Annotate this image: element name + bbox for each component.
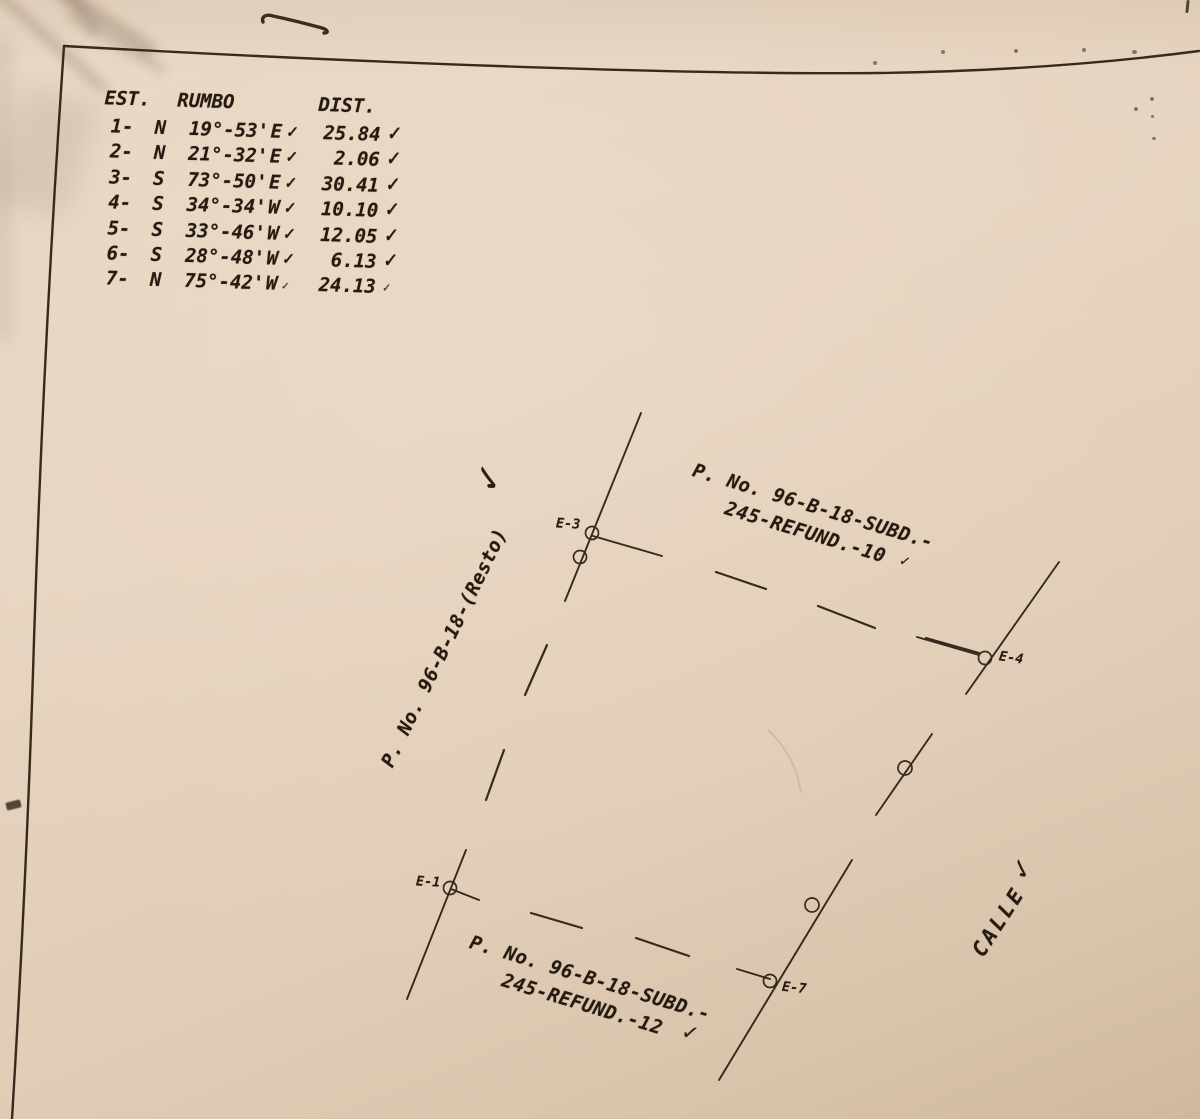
checkmark-icon: ✓ bbox=[386, 121, 401, 147]
dust-speck bbox=[1152, 137, 1156, 140]
survey-plat-photo: EST. RUMBO DIST. 1-N 19°-53'E✓25.84✓ 2-N… bbox=[0, 0, 1200, 1119]
checkmark-icon: ✓ bbox=[281, 244, 319, 272]
est-cell: 3- bbox=[109, 165, 154, 191]
survey-tick bbox=[593, 536, 662, 556]
checkmark-icon: ✓ bbox=[384, 171, 399, 197]
paper-crease bbox=[768, 730, 801, 792]
checkmark-icon: ✓ bbox=[280, 272, 318, 300]
dash bbox=[486, 750, 504, 800]
rumbo-cell: S 33°-46' bbox=[151, 217, 268, 245]
rumbo-cell: N 75°-42' bbox=[150, 268, 267, 296]
traverse-line-e7 bbox=[719, 860, 852, 1080]
dust-speck bbox=[1014, 49, 1018, 53]
col-header-rumbo: RUMBO bbox=[177, 89, 235, 119]
dash bbox=[716, 572, 766, 589]
checkmark-icon: ✓ bbox=[382, 248, 397, 274]
dist-cell: 6.13 bbox=[318, 248, 377, 274]
point-label-e3: E-3 bbox=[556, 515, 581, 532]
col-header-est: EST. bbox=[104, 86, 151, 115]
traverse-table: EST. RUMBO DIST. 1-N 19°-53'E✓25.84✓ 2-N… bbox=[91, 86, 577, 310]
est-cell: 2- bbox=[110, 140, 155, 166]
rumbo-cell: N 19°-53' bbox=[154, 116, 271, 144]
survey-tick bbox=[917, 637, 979, 655]
est-cell: 7- bbox=[106, 267, 151, 293]
dash bbox=[926, 638, 979, 653]
pen-mark bbox=[263, 15, 328, 33]
dust-speck bbox=[1150, 97, 1154, 101]
checkmark-icon: ✓ bbox=[282, 218, 320, 246]
dist-cell: 24.13 bbox=[317, 273, 376, 299]
checkmark-icon: ✓ bbox=[382, 222, 397, 248]
point-label-e4: E-4 bbox=[998, 648, 1024, 667]
parcel-boundary-dashed-bottom bbox=[531, 913, 689, 956]
dust-speck bbox=[1134, 107, 1138, 111]
traverse-line-e4 bbox=[917, 562, 1059, 694]
plat-border-left bbox=[12, 46, 64, 1119]
dist-cell: 10.10 bbox=[320, 197, 379, 223]
dust-speck bbox=[941, 50, 945, 54]
dash bbox=[818, 606, 875, 628]
dash bbox=[636, 938, 689, 956]
survey-line bbox=[966, 562, 1059, 694]
checkmark-icon: ✓ bbox=[383, 197, 398, 223]
rumbo-cell: S 73°-50' bbox=[153, 167, 270, 195]
dust-speck bbox=[1151, 115, 1154, 118]
dash bbox=[525, 645, 547, 695]
point-label-e1: E-1 bbox=[416, 873, 441, 890]
dust-speck bbox=[1132, 50, 1137, 54]
dist-cell: 2.06 bbox=[321, 146, 380, 172]
point-label-e7: E-7 bbox=[781, 979, 807, 997]
traverse-line-e3 bbox=[565, 413, 662, 601]
dist-cell: 25.84 bbox=[322, 121, 381, 147]
station-marker bbox=[805, 898, 819, 912]
checkmark-icon: ✓ bbox=[283, 193, 321, 221]
est-cell: 1- bbox=[110, 114, 155, 140]
rumbo-cell: S 28°-48' bbox=[150, 243, 267, 271]
est-cell: 5- bbox=[107, 216, 152, 242]
est-cell: 4- bbox=[108, 191, 153, 217]
dust-speck bbox=[873, 61, 877, 65]
checkmark-icon: ✓ bbox=[381, 276, 391, 301]
station-marker-e7 bbox=[764, 975, 777, 988]
checkmark-icon: ✓ bbox=[385, 146, 400, 172]
dist-cell: 30.41 bbox=[321, 172, 380, 198]
est-cell: 6- bbox=[106, 241, 151, 267]
checkmark-icon: ✓ bbox=[285, 117, 323, 145]
parcel-boundary-dashed-left bbox=[486, 645, 547, 800]
dash bbox=[531, 913, 582, 928]
plat-border-top bbox=[64, 46, 1199, 73]
checkmark-icon: ✓ bbox=[284, 142, 322, 170]
station-marker-e4 bbox=[979, 652, 992, 665]
parcel-boundary-dashed-top bbox=[716, 572, 979, 653]
survey-line bbox=[565, 413, 641, 601]
right-edge-segment bbox=[876, 734, 932, 815]
dust-speck bbox=[1082, 48, 1086, 52]
dist-cell: 12.05 bbox=[319, 223, 378, 249]
checkmark-icon: ✓ bbox=[283, 167, 321, 195]
rumbo-cell: S 34°-34' bbox=[152, 192, 269, 220]
col-header-dist: DIST. bbox=[318, 93, 376, 123]
rumbo-cell: N 21°-32' bbox=[154, 141, 271, 169]
